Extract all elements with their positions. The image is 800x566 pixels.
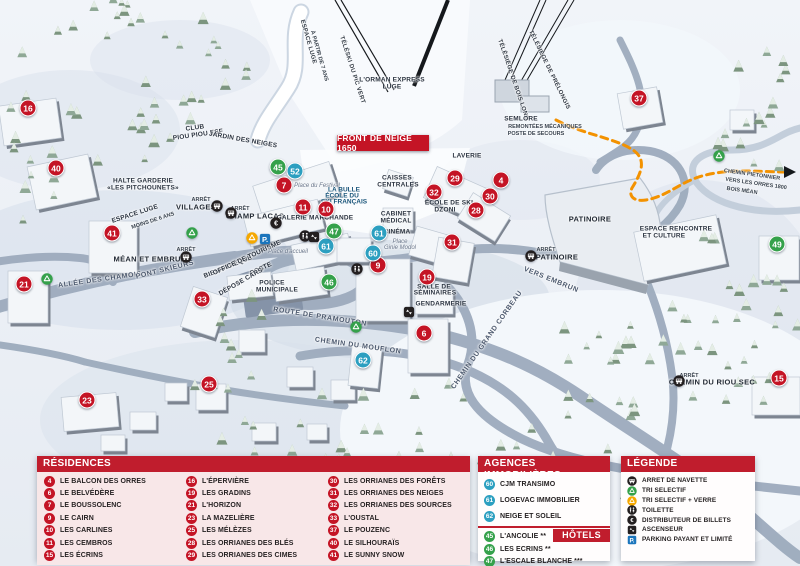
- map-marker-61: 61: [371, 225, 388, 242]
- map-label: TÉLÉSKI DU PIC VERT: [338, 35, 366, 104]
- map-label: GALERIE MARCHANDE: [277, 215, 354, 222]
- item-label: CJM TRANSIMO: [500, 481, 555, 488]
- map-icon-wrap: [211, 200, 223, 212]
- item-label: LES ECRINS **: [500, 546, 551, 553]
- item-label: L'OUSTAL: [344, 515, 379, 522]
- legend-label: TRI SELECTIF + VERRE: [642, 497, 716, 504]
- map-label: VERS EMBRUN: [523, 266, 580, 294]
- legend-label: PARKING PAYANT ET LIMITÉ: [642, 536, 732, 543]
- residence-item: 11LES CEMBROS: [44, 537, 186, 549]
- bus-stop-icon: [673, 375, 685, 387]
- item-label: LES CEMBROS: [60, 540, 112, 547]
- item-number-badge: 15: [44, 550, 55, 561]
- item-number-badge: 30: [328, 476, 339, 487]
- recycling-icon: [627, 486, 637, 496]
- panel-agences-title: AGENCES IMMOBILIÈRES: [478, 456, 610, 472]
- item-label: LES ÉCRINS: [60, 552, 103, 559]
- svg-text:€: €: [274, 220, 278, 227]
- residence-item: 16L'ÉPERVIÈRE: [186, 475, 328, 487]
- item-label: LOGEVAC IMMOBILIER: [500, 497, 580, 504]
- map-marker-62: 62: [355, 352, 372, 369]
- item-number-badge: 37: [328, 525, 339, 536]
- residences-column: 4LE BALCON DES ORRES6LE BELVÉDÈRE7LE BOU…: [44, 475, 186, 564]
- map-label: REMONTÉES MÉCANIQUES: [508, 124, 582, 130]
- hotels-title: HÔTELS: [553, 529, 610, 542]
- item-number-badge: 25: [186, 525, 197, 536]
- map-icon-wrap: [180, 251, 192, 263]
- recycling-glass-icon: [246, 232, 258, 244]
- map-marker-45: 45: [270, 159, 287, 176]
- map-label: «LES PITCHOUNETS»: [107, 185, 179, 192]
- legend-label: ARRET DE NAVETTE: [642, 477, 707, 484]
- map-label: MÉAN ET EMBRUN: [114, 255, 187, 264]
- map-label: POSTE DE SECOURS: [508, 131, 565, 137]
- item-number-badge: 61: [484, 495, 495, 506]
- residence-item: 10LES CARLINES: [44, 525, 186, 537]
- item-label: LE SUNNY SNOW: [344, 552, 404, 559]
- panel-legende-title: LÉGENDE: [621, 456, 755, 472]
- recycling-icon: [186, 227, 198, 239]
- map-marker-16: 16: [20, 100, 37, 117]
- bus-stop-icon: [211, 200, 223, 212]
- item-number-badge: 9: [44, 513, 55, 524]
- item-label: LA MAZELIÈRE: [202, 515, 255, 522]
- item-number-badge: 41: [328, 550, 339, 561]
- hotel-item: 46LES ECRINS **: [484, 543, 610, 556]
- resort-map: ESPACE LUGEÀ PARTIR DE 7 ANSTÉLÉSKI DU P…: [0, 0, 800, 566]
- item-number-badge: 6: [44, 488, 55, 499]
- item-label: LE BALCON DES ORRES: [60, 478, 146, 485]
- map-marker-23: 23: [79, 392, 96, 409]
- map-marker-28: 28: [468, 202, 485, 219]
- panel-agences: AGENCES IMMOBILIÈRES 60CJM TRANSIMO61LOG…: [478, 456, 610, 561]
- item-label: L'ESCALE BLANCHE ***: [500, 558, 583, 565]
- map-label: CAISSES: [382, 175, 412, 182]
- map-marker-32: 32: [426, 184, 443, 201]
- item-label: LE POUZENC: [344, 527, 390, 534]
- legend-label: DISTRIBUTEUR DE BILLETS: [642, 517, 731, 524]
- hotel-item: 47L'ESCALE BLANCHE ***: [484, 556, 610, 566]
- map-icon-wrap: [713, 150, 725, 162]
- item-number-badge: 23: [186, 513, 197, 524]
- parking-icon: P.: [627, 535, 637, 545]
- item-number-badge: 40: [328, 538, 339, 549]
- front-de-neige-banner: FRONT DE NEIGE 1650: [337, 135, 429, 151]
- item-label: L'ANCOLIE **: [500, 533, 546, 540]
- legend-label: TRI SELECTIF: [642, 487, 686, 494]
- legend-item: P.PARKING PAYANT ET LIMITÉ: [627, 535, 755, 545]
- map-marker-46: 46: [321, 274, 338, 291]
- map-label: PATINOIRE: [569, 215, 611, 224]
- map-label: OFFICE DE TOURISME: [212, 239, 282, 277]
- item-number-badge: 21: [186, 500, 197, 511]
- map-label: ALLÉE DES CHAMOIS: [58, 271, 143, 290]
- item-label: LES ORRIANES DES NEIGES: [344, 490, 444, 497]
- item-number-badge: 47: [484, 556, 495, 566]
- map-label: MUNICIPALE: [256, 287, 298, 294]
- bus-stop-icon: [525, 250, 537, 262]
- map-icon-wrap: [351, 263, 363, 275]
- item-number-badge: 4: [44, 476, 55, 487]
- residence-item: 9LE CAIRN: [44, 512, 186, 524]
- item-label: LE SILHOURAÏS: [344, 540, 399, 547]
- map-marker-10: 10: [318, 201, 335, 218]
- item-number-badge: 33: [328, 513, 339, 524]
- item-number-badge: 46: [484, 544, 495, 555]
- map-marker-15: 15: [771, 370, 788, 387]
- item-number-badge: 7: [44, 500, 55, 511]
- item-label: LES CARLINES: [60, 527, 113, 534]
- map-label: Ginie Modol: [384, 245, 416, 251]
- map-icon-wrap: [403, 306, 415, 318]
- panel-residences: RÉSIDENCES 4LE BALCON DES ORRES6LE BELVÉ…: [37, 456, 470, 561]
- item-number-badge: 28: [186, 538, 197, 549]
- map-icon-wrap: [186, 227, 198, 239]
- agency-item: 61LOGEVAC IMMOBILIER: [484, 492, 610, 508]
- residence-item: 23LA MAZELIÈRE: [186, 512, 328, 524]
- map-marker-25: 25: [201, 376, 218, 393]
- panel-residences-title: RÉSIDENCES: [37, 456, 470, 472]
- item-label: LE BOUSSOLENC: [60, 502, 122, 509]
- svg-text:P.: P.: [262, 235, 268, 244]
- map-label: LUGE: [383, 84, 402, 91]
- map-marker-37: 37: [631, 90, 648, 107]
- residence-item: 28LES ORRIANES DES BLÉS: [186, 537, 328, 549]
- item-label: LES ORRIANES DES FORÊTS: [344, 478, 445, 485]
- map-marker-61: 61: [318, 238, 335, 255]
- item-number-badge: 16: [186, 476, 197, 487]
- legend-label: TOILETTE: [642, 507, 674, 514]
- residence-item: 41LE SUNNY SNOW: [328, 549, 470, 561]
- residences-column: 30LES ORRIANES DES FORÊTS31LES ORRIANES …: [328, 475, 470, 564]
- legend-item: ASCENSEUR: [627, 525, 755, 535]
- map-label: L'ORMAN EXPRESS: [359, 77, 425, 84]
- item-number-badge: 45: [484, 531, 495, 542]
- residences-list: 4LE BALCON DES ORRES6LE BELVÉDÈRE7LE BOU…: [37, 472, 470, 565]
- residence-item: 4LE BALCON DES ORRES: [44, 475, 186, 487]
- parking-icon: P.: [259, 233, 271, 245]
- panel-legende: LÉGENDE ARRET DE NAVETTETRI SELECTIFTRI …: [621, 456, 755, 561]
- map-marker-6: 6: [416, 325, 433, 342]
- map-label: CINÉMA: [384, 229, 411, 236]
- map-label: ÉCOLE DE SKI: [425, 200, 473, 207]
- item-number-badge: 62: [484, 511, 495, 522]
- map-marker-11: 11: [295, 199, 312, 216]
- residences-column: 16L'ÉPERVIÈRE19LES GRADINS21L'HORIZON23L…: [186, 475, 328, 564]
- item-number-badge: 29: [186, 550, 197, 561]
- map-label: TÉLÉSIÈGE DE PRÉLONGIS: [527, 29, 571, 110]
- map-marker-19: 19: [419, 269, 436, 286]
- map-marker-52: 52: [287, 163, 304, 180]
- residence-item: 32LES ORRIANES DES SOURCES: [328, 500, 470, 512]
- map-icon-wrap: [246, 232, 258, 244]
- residence-item: 29LES ORRIANES DES CIMES: [186, 549, 328, 561]
- residence-item: 30LES ORRIANES DES FORÊTS: [328, 475, 470, 487]
- legende-list: ARRET DE NAVETTETRI SELECTIFTRI SELECTIF…: [621, 472, 755, 547]
- map-icon-wrap: [350, 321, 362, 333]
- item-number-badge: 11: [44, 538, 55, 549]
- map-icon-wrap: [525, 250, 537, 262]
- recycling-icon: [41, 273, 53, 285]
- hotels-section: HÔTELS 45L'ANCOLIE **46LES ECRINS **47L'…: [478, 526, 610, 566]
- map-label: CENTRALES: [377, 182, 419, 189]
- item-label: LES ORRIANES DES BLÉS: [202, 540, 294, 547]
- residence-item: 6LE BELVÉDÈRE: [44, 487, 186, 499]
- item-number-badge: 10: [44, 525, 55, 536]
- map-icon-wrap: [673, 375, 685, 387]
- toilet-icon: [627, 505, 637, 515]
- residence-item: 25LES MÉLÈZES: [186, 525, 328, 537]
- legend-item: €DISTRIBUTEUR DE BILLETS: [627, 515, 755, 525]
- map-marker-49: 49: [769, 236, 786, 253]
- map-icon-wrap: P.: [259, 233, 271, 245]
- map-label: Place d'accueil: [268, 249, 308, 255]
- map-marker-41: 41: [104, 225, 121, 242]
- map-label: MÉDICAL: [380, 218, 411, 225]
- map-marker-21: 21: [16, 276, 33, 293]
- residence-item: 19LES GRADINS: [186, 487, 328, 499]
- residence-item: 33L'OUSTAL: [328, 512, 470, 524]
- map-label: SEMLORE: [504, 116, 538, 123]
- atm-euro-icon: €: [270, 217, 282, 229]
- residence-item: 37LE POUZENC: [328, 525, 470, 537]
- legend-item: TOILETTE: [627, 505, 755, 515]
- map-marker-33: 33: [194, 291, 211, 308]
- atm-euro-icon: €: [627, 515, 637, 525]
- map-label: TÉLÉSIÈGE DE BOIS LONG: [496, 39, 530, 122]
- map-label: LAVERIE: [452, 153, 481, 160]
- item-label: L'ÉPERVIÈRE: [202, 478, 249, 485]
- item-label: LE CAIRN: [60, 515, 94, 522]
- recycling-icon: [713, 150, 725, 162]
- legend-item: ARRET DE NAVETTE: [627, 476, 755, 486]
- item-number-badge: 60: [484, 479, 495, 490]
- item-label: LES ORRIANES DES CIMES: [202, 552, 297, 559]
- map-marker-4: 4: [493, 172, 510, 189]
- map-marker-31: 31: [444, 234, 461, 251]
- residence-item: 15LES ÉCRINS: [44, 549, 186, 561]
- map-label: POLICE: [259, 280, 284, 287]
- item-label: LES ORRIANES DES SOURCES: [344, 502, 452, 509]
- item-label: LES GRADINS: [202, 490, 251, 497]
- map-label: GENDARMERIE: [416, 301, 467, 308]
- map-icon-wrap: [41, 273, 53, 285]
- residence-item: 40LE SILHOURAÏS: [328, 537, 470, 549]
- map-label: SÉMINAIRES: [414, 290, 456, 297]
- svg-text:P.: P.: [629, 537, 634, 544]
- map-label: JARDIN DES NEIGES: [208, 131, 277, 150]
- item-label: NEIGE ET SOLEIL: [500, 513, 561, 520]
- map-marker-29: 29: [447, 170, 464, 187]
- item-number-badge: 19: [186, 488, 197, 499]
- map-label: DZONI: [434, 207, 455, 214]
- residence-item: 21L'HORIZON: [186, 500, 328, 512]
- bus-stop-icon: [180, 251, 192, 263]
- residence-item: 7LE BOUSSOLENC: [44, 500, 186, 512]
- legend-item: TRI SELECTIF: [627, 486, 755, 496]
- recycling-icon: [350, 321, 362, 333]
- map-label: ET CULTURE: [643, 233, 686, 240]
- map-icon-wrap: €: [270, 217, 282, 229]
- toilet-icon: [351, 263, 363, 275]
- elevator-icon: [627, 525, 637, 535]
- map-marker-7: 7: [276, 177, 293, 194]
- bus-stop-icon: [225, 207, 237, 219]
- elevator-icon: [403, 306, 415, 318]
- recycling-glass-icon: [627, 496, 637, 506]
- map-marker-60: 60: [365, 245, 382, 262]
- legend-label: ASCENSEUR: [642, 526, 683, 533]
- map-icon-wrap: [225, 207, 237, 219]
- map-label: HALTE GARDERIE: [113, 178, 173, 185]
- item-label: L'HORIZON: [202, 502, 241, 509]
- map-label: BOIS MÉAN: [726, 186, 758, 196]
- agency-item: 62NEIGE ET SOLEIL: [484, 508, 610, 524]
- map-marker-30: 30: [482, 188, 499, 205]
- map-marker-40: 40: [48, 160, 65, 177]
- item-number-badge: 31: [328, 488, 339, 499]
- item-label: LES MÉLÈZES: [202, 527, 252, 534]
- bus-stop-icon: [627, 476, 637, 486]
- map-marker-47: 47: [326, 223, 343, 240]
- map-label: CABINET: [381, 211, 411, 218]
- map-label: ESPACE RENCONTRE: [640, 226, 712, 233]
- map-label: VILLAGES: [176, 203, 216, 212]
- map-label: PATINOIRE: [536, 253, 578, 262]
- legend-item: TRI SELECTIF + VERRE: [627, 496, 755, 506]
- residence-item: 31LES ORRIANES DES NEIGES: [328, 487, 470, 499]
- item-label: LE BELVÉDÈRE: [60, 490, 114, 497]
- item-number-badge: 32: [328, 500, 339, 511]
